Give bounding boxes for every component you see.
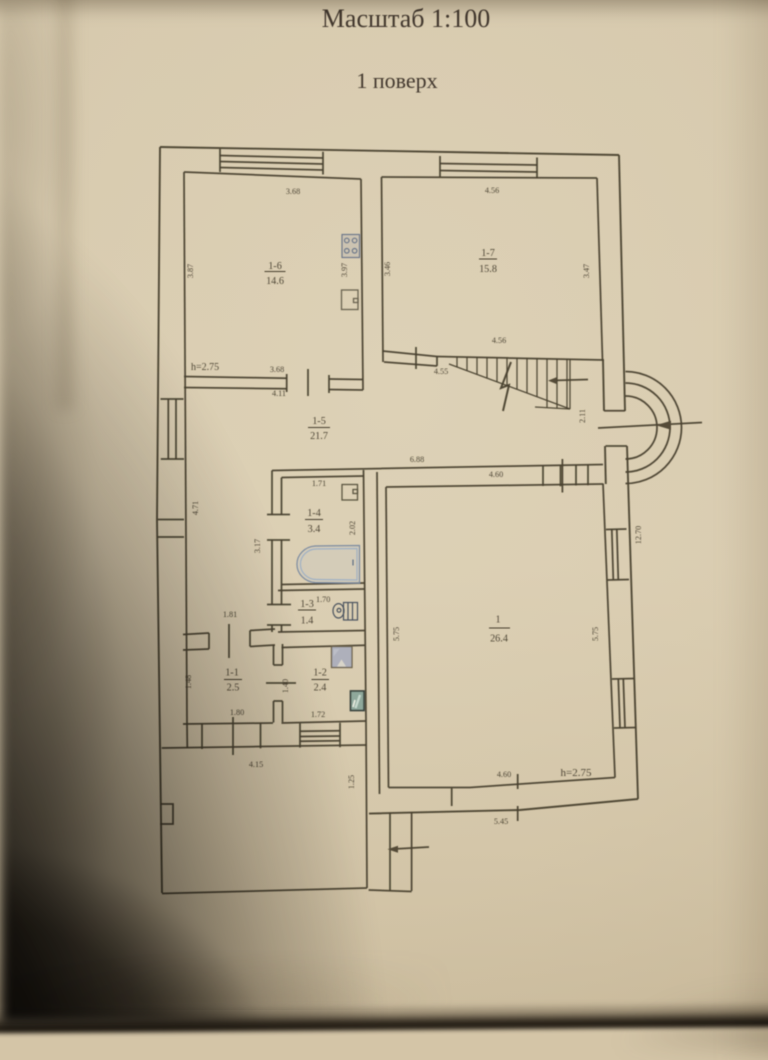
svg-text:2.11: 2.11 [578, 409, 587, 423]
svg-text:4.60: 4.60 [489, 470, 503, 479]
svg-text:5.75: 5.75 [392, 627, 401, 641]
svg-text:1-1: 1-1 [225, 668, 239, 679]
svg-text:1-2: 1-2 [313, 668, 327, 679]
svg-text:2.4: 2.4 [314, 683, 327, 694]
svg-text:1.25: 1.25 [347, 775, 356, 789]
svg-text:14.6: 14.6 [266, 276, 284, 287]
svg-text:1-3: 1-3 [300, 599, 314, 610]
svg-text:3.17: 3.17 [253, 539, 262, 553]
svg-text:h=2.75: h=2.75 [191, 362, 219, 373]
svg-text:1.81: 1.81 [223, 610, 237, 619]
svg-text:6.88: 6.88 [410, 455, 424, 464]
svg-text:3.68: 3.68 [270, 365, 284, 374]
svg-text:5.75: 5.75 [591, 627, 600, 641]
svg-text:4.55: 4.55 [434, 367, 448, 376]
svg-text:1.70: 1.70 [316, 595, 330, 604]
svg-text:3.46: 3.46 [383, 262, 392, 276]
svg-text:1.80: 1.80 [230, 708, 244, 717]
svg-text:2.5: 2.5 [227, 683, 240, 694]
svg-text:3.97: 3.97 [340, 263, 349, 277]
svg-text:3.47: 3.47 [582, 264, 591, 278]
svg-text:21.7: 21.7 [310, 431, 328, 442]
svg-text:1-4: 1-4 [307, 508, 321, 519]
svg-text:5.45: 5.45 [494, 817, 508, 826]
svg-text:1-7: 1-7 [481, 248, 495, 259]
svg-text:4.56: 4.56 [492, 336, 506, 345]
svg-text:1-6: 1-6 [268, 261, 282, 272]
svg-text:3.87: 3.87 [186, 264, 195, 278]
svg-text:Масштаб 1:100: Масштаб 1:100 [322, 4, 490, 33]
svg-text:12.70: 12.70 [634, 526, 643, 544]
svg-text:3.68: 3.68 [286, 187, 300, 196]
svg-text:1: 1 [495, 615, 500, 626]
svg-text:1.48: 1.48 [184, 675, 193, 689]
svg-text:1.40: 1.40 [281, 679, 290, 693]
svg-text:1.72: 1.72 [311, 710, 325, 719]
svg-text:1 поверх: 1 поверх [356, 68, 437, 93]
svg-text:2.02: 2.02 [348, 521, 357, 535]
svg-text:1.4: 1.4 [301, 616, 314, 627]
svg-text:4.60: 4.60 [497, 770, 511, 779]
svg-text:4.71: 4.71 [191, 501, 200, 515]
svg-text:4.56: 4.56 [485, 186, 499, 195]
svg-text:h=2.75: h=2.75 [561, 767, 592, 779]
svg-text:4.11: 4.11 [272, 389, 286, 398]
svg-text:26.4: 26.4 [490, 634, 508, 645]
svg-text:15.8: 15.8 [479, 264, 497, 275]
svg-text:1.71: 1.71 [312, 479, 326, 488]
svg-text:4.15: 4.15 [249, 760, 263, 769]
svg-text:1-5: 1-5 [312, 416, 326, 427]
svg-text:3.4: 3.4 [308, 524, 321, 535]
